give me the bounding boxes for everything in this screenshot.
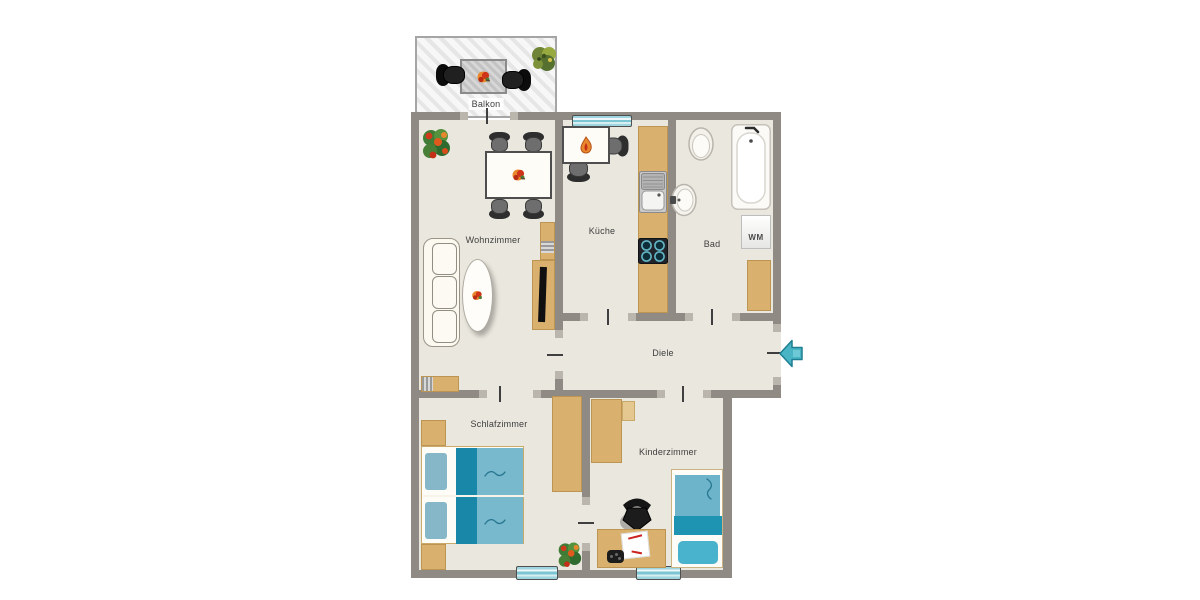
desk-paper bbox=[621, 531, 651, 560]
pillow bbox=[678, 541, 718, 564]
door-tick bbox=[682, 386, 684, 402]
jamb bbox=[703, 390, 711, 398]
nightstand bbox=[421, 420, 446, 446]
dining-chair bbox=[522, 132, 545, 153]
jamb bbox=[510, 112, 518, 120]
balcony-chair-right bbox=[500, 67, 531, 92]
door-tick bbox=[547, 354, 563, 356]
jamb bbox=[582, 543, 590, 551]
bathtub-icon bbox=[731, 124, 771, 210]
stove-icon bbox=[638, 238, 668, 264]
door-tick bbox=[607, 309, 609, 325]
blanket-crease-icon bbox=[484, 517, 506, 527]
jamb bbox=[628, 313, 636, 321]
jamb bbox=[657, 390, 665, 398]
balcony-chair-left bbox=[436, 63, 467, 88]
jamb bbox=[580, 313, 588, 321]
door-tick bbox=[711, 309, 713, 325]
bathroom-cabinet bbox=[747, 260, 771, 311]
washing-machine: WM bbox=[741, 215, 771, 249]
jamb bbox=[479, 390, 487, 398]
blanket-fold bbox=[674, 516, 722, 535]
toilet-icon bbox=[688, 127, 714, 161]
coffee-table-oval bbox=[462, 259, 493, 332]
dining-chair bbox=[488, 198, 511, 219]
wardrobe-schlafzimmer bbox=[552, 396, 582, 492]
jamb bbox=[555, 371, 563, 379]
sideboard-drawers bbox=[541, 241, 554, 253]
room-label-schlafzimmer: Schlafzimmer bbox=[471, 419, 528, 429]
door-tick bbox=[486, 108, 488, 124]
sofa bbox=[423, 238, 460, 347]
door-tick bbox=[499, 386, 501, 402]
pillow bbox=[425, 502, 447, 539]
kitchen-sink-icon bbox=[639, 171, 667, 213]
room-label-wohnzimmer: Wohnzimmer bbox=[466, 235, 521, 245]
wall-diele-top-b bbox=[628, 313, 693, 321]
lowboard-drawers bbox=[422, 377, 433, 391]
room-label-bad: Bad bbox=[704, 239, 721, 249]
wall-top-b bbox=[510, 112, 781, 120]
wall-right-upper bbox=[773, 120, 781, 332]
wall-bottom bbox=[411, 570, 732, 578]
wardrobe-kinderzimmer-side bbox=[622, 401, 635, 421]
wall-mid-c bbox=[703, 390, 781, 398]
wall-kueche-bad bbox=[668, 120, 676, 321]
room-label-kinderzimmer: Kinderzimmer bbox=[639, 447, 697, 457]
wardrobe-kinderzimmer bbox=[591, 399, 622, 463]
jamb bbox=[460, 112, 468, 120]
blanket-crease-icon bbox=[484, 469, 506, 479]
balcony-plant-icon bbox=[530, 44, 558, 72]
jamb bbox=[773, 324, 781, 332]
flower-decor-icon bbox=[471, 289, 484, 302]
kitchen-table bbox=[562, 126, 610, 164]
jamb bbox=[533, 390, 541, 398]
double-bed bbox=[421, 446, 524, 544]
nightstand bbox=[421, 544, 446, 570]
jamb bbox=[685, 313, 693, 321]
kitchen-counter bbox=[638, 126, 668, 313]
dining-chair bbox=[488, 132, 511, 153]
flower-decor-icon bbox=[511, 167, 527, 183]
floorplan: Balkon bbox=[0, 0, 1200, 600]
pillow bbox=[425, 453, 447, 490]
dining-chair bbox=[522, 198, 545, 219]
jamb bbox=[732, 313, 740, 321]
wall-kinderzimmer-right bbox=[723, 398, 732, 578]
wall-schlaf-kinder-a bbox=[582, 398, 590, 505]
jamb bbox=[555, 330, 563, 338]
flame-decor-icon bbox=[579, 136, 593, 154]
room-label-kueche: Küche bbox=[589, 226, 616, 236]
jamb bbox=[773, 377, 781, 385]
room-label-diele: Diele bbox=[652, 348, 674, 358]
door-tick bbox=[578, 522, 594, 524]
schlafzimmer-window bbox=[516, 566, 558, 580]
dining-table bbox=[485, 151, 552, 199]
kinderzimmer-window bbox=[636, 566, 681, 580]
desk-gadget bbox=[607, 550, 624, 563]
pen-marks-icon bbox=[622, 532, 652, 561]
single-bed bbox=[671, 469, 723, 568]
washing-machine-label: WM bbox=[748, 233, 763, 242]
livingroom-plant-icon bbox=[421, 126, 451, 162]
wall-left bbox=[411, 120, 419, 578]
blanket-crease-icon bbox=[704, 478, 714, 500]
bathroom-sink-icon bbox=[670, 183, 697, 217]
bed-divider bbox=[423, 495, 524, 497]
flower-decor-icon bbox=[476, 69, 492, 85]
bedroom-plant-icon bbox=[556, 540, 583, 570]
jamb bbox=[582, 497, 590, 505]
entry-arrow-icon bbox=[778, 338, 804, 369]
